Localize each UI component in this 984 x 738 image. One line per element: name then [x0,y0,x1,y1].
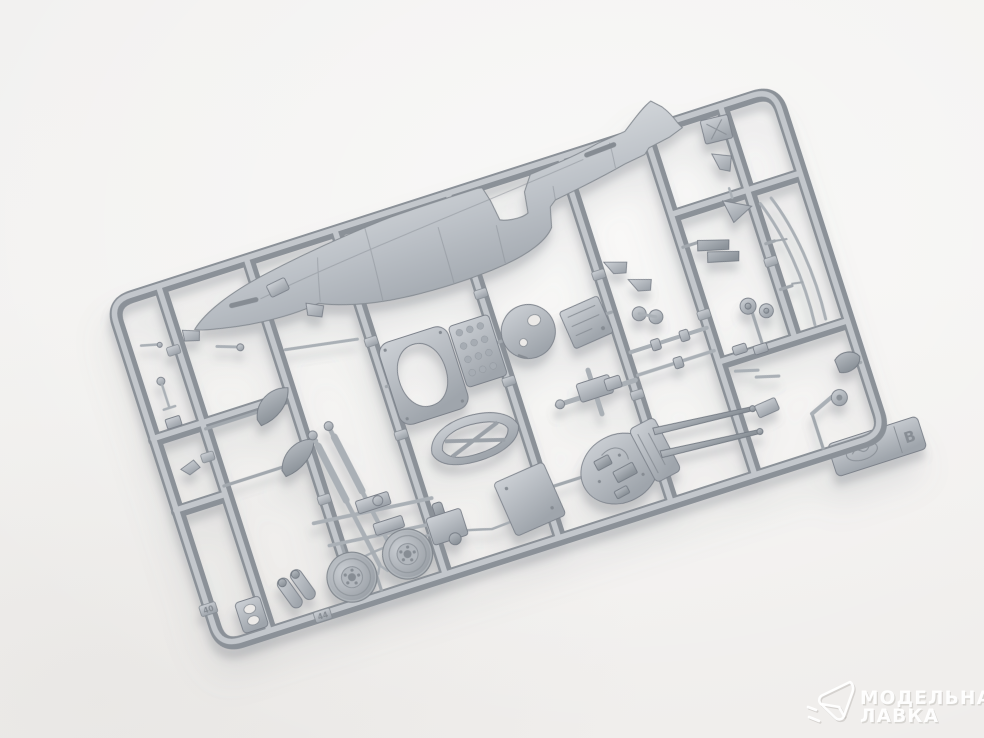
sprue-photo-canvas: B 40 44 [0,0,984,738]
watermark-line2: ЛАВКА [860,706,939,727]
photo-of-model-kit-sprue: B 40 44 [0,0,984,738]
